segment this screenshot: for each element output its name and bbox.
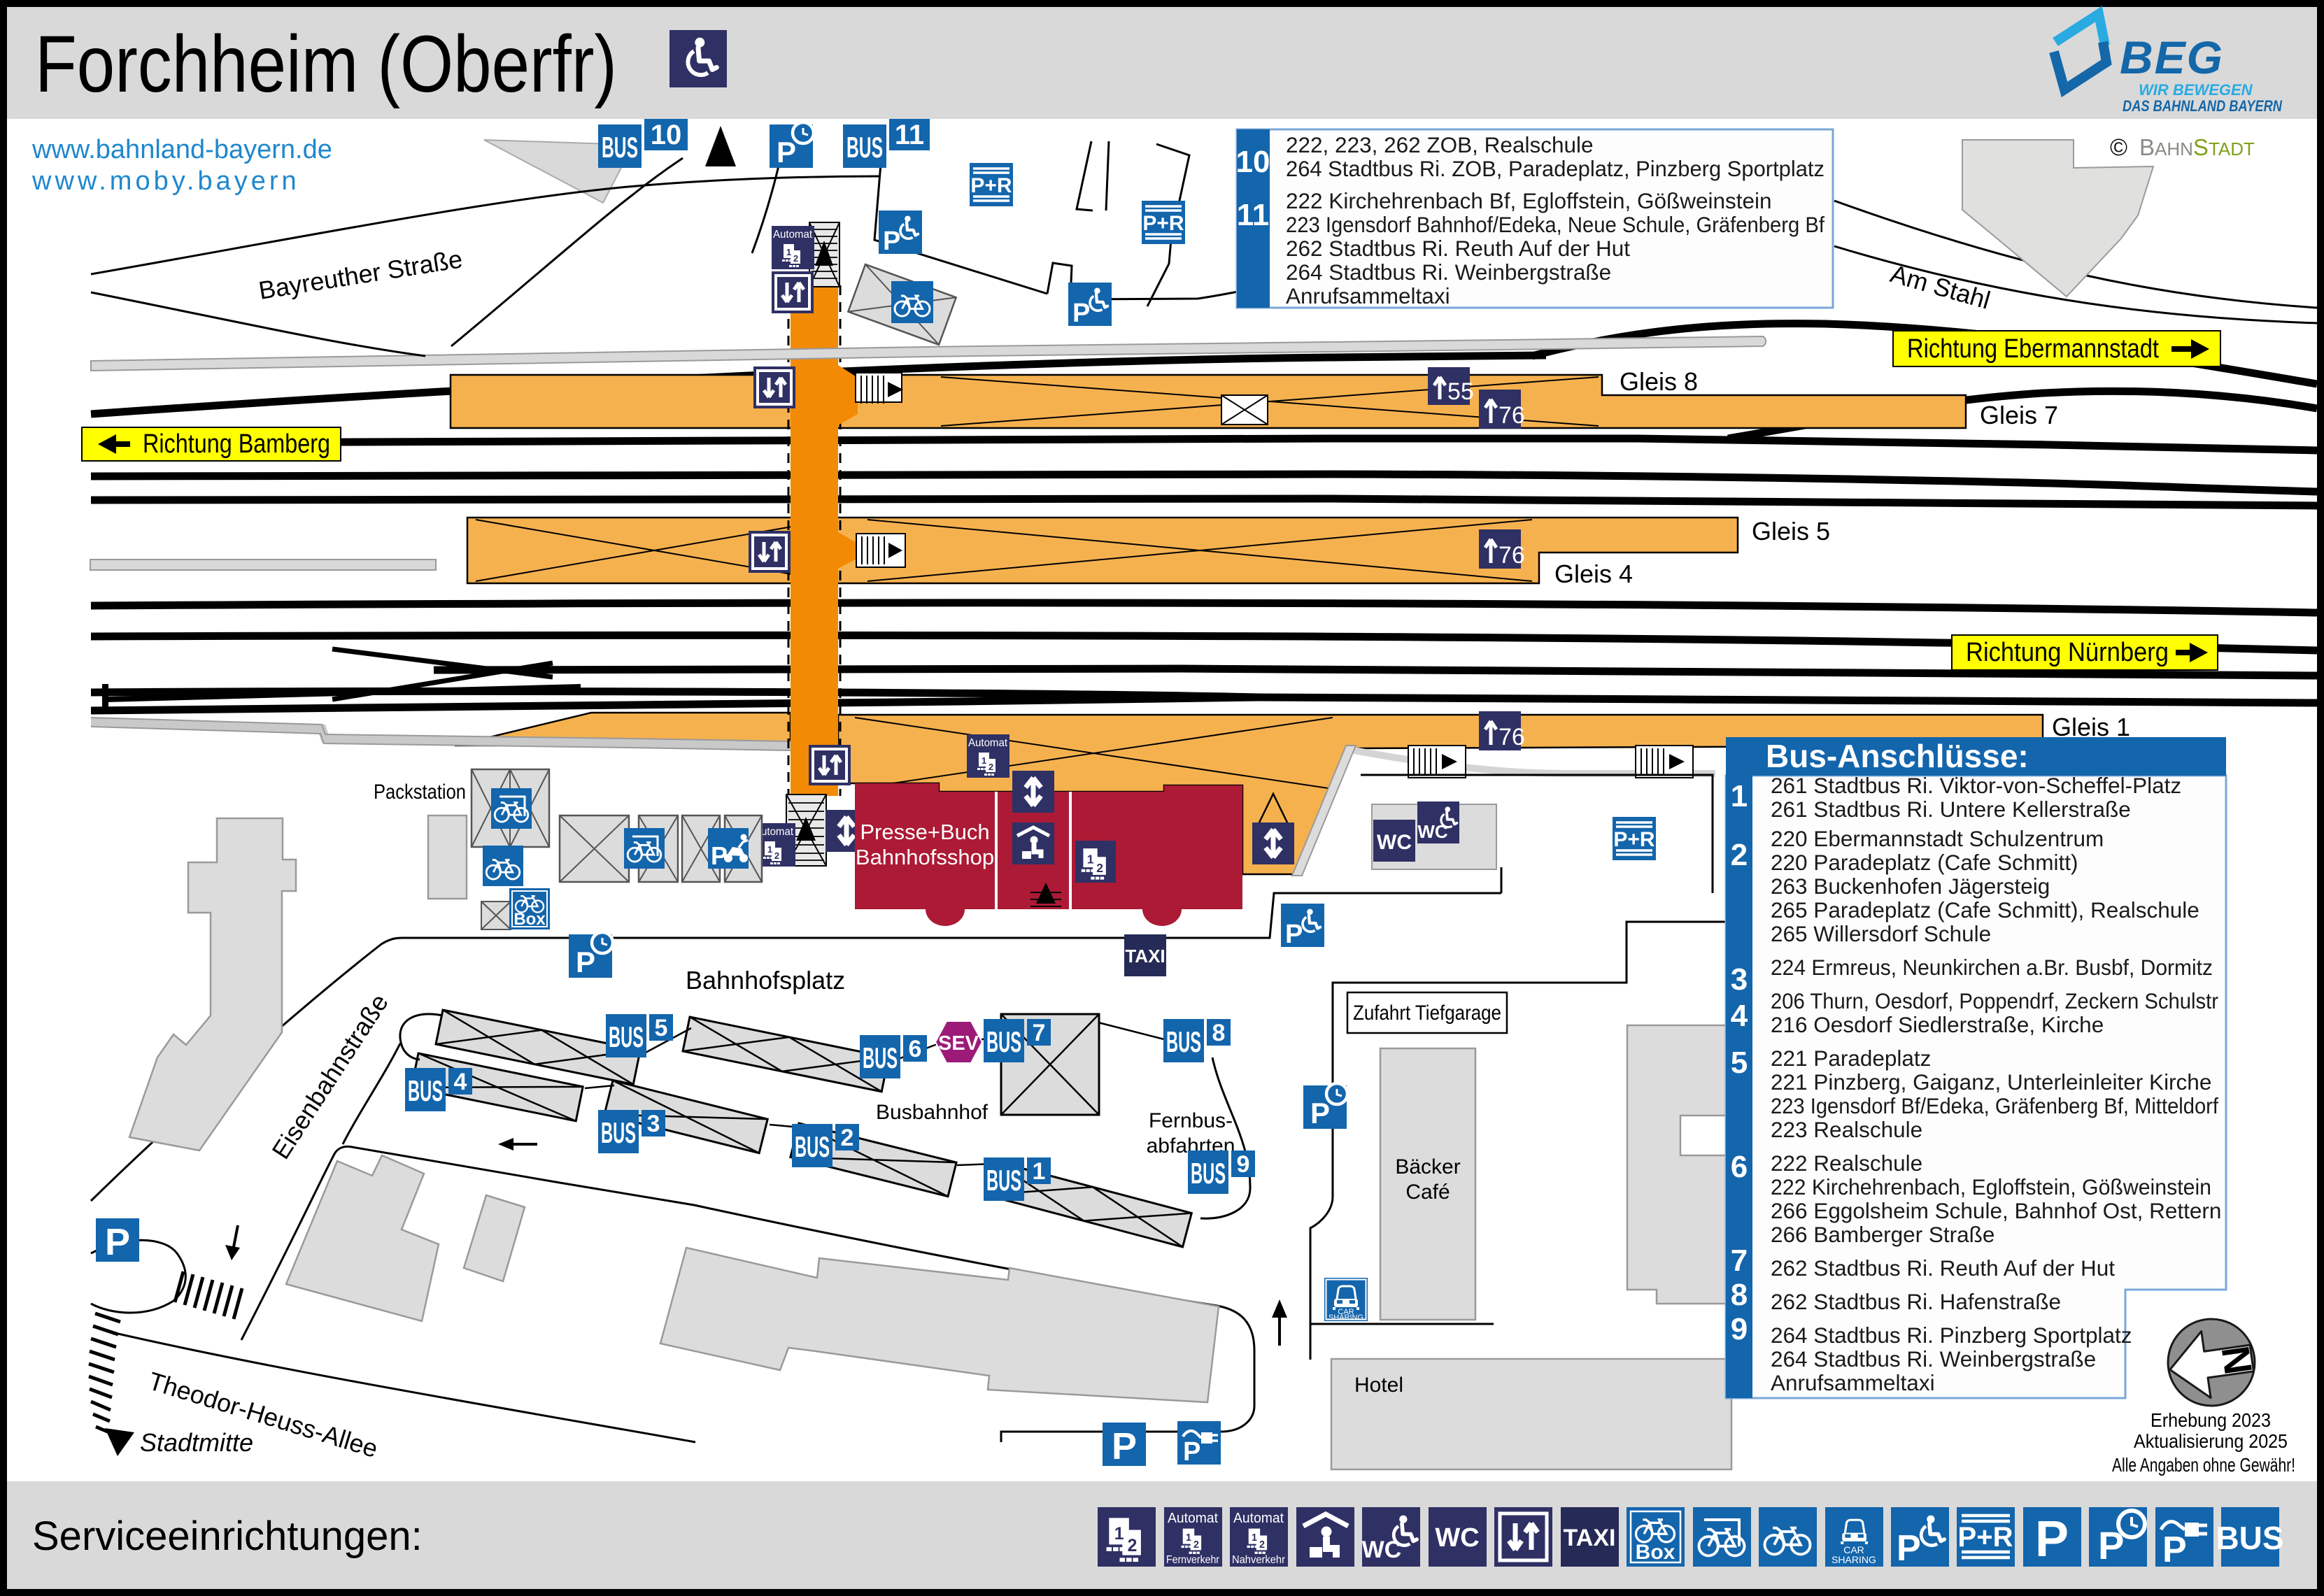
svg-text:222 Kirchehrenbach Bf, Egloffs: 222 Kirchehrenbach Bf, Egloffstein, Gößw… — [1286, 188, 1772, 213]
svg-text:Anrufsammeltaxi: Anrufsammeltaxi — [1286, 283, 1450, 308]
svg-text:262 Stadtbus Ri. Reuth Auf der: 262 Stadtbus Ri. Reuth Auf der Hut — [1286, 236, 1630, 261]
svg-text:Busbahnhof: Busbahnhof — [876, 1101, 989, 1124]
svg-text:P: P — [1112, 1425, 1137, 1467]
svg-text:P: P — [1310, 1097, 1330, 1130]
svg-text:WIR BEWEGEN: WIR BEWEGEN — [2139, 81, 2253, 99]
svg-text:WC: WC — [1435, 1523, 1479, 1553]
svg-text:BAHNSTADT: BAHNSTADT — [2139, 134, 2255, 160]
svg-text:6: 6 — [909, 1036, 922, 1062]
svg-text:Erhebung 2023: Erhebung 2023 — [2151, 1409, 2271, 1431]
svg-text:BUS: BUS — [863, 1041, 898, 1074]
svg-text:Gleis 8: Gleis 8 — [1620, 367, 1698, 396]
svg-text:Bahnhofsplatz: Bahnhofsplatz — [686, 966, 845, 995]
svg-text:Automat: Automat — [968, 737, 1008, 749]
svg-text:©: © — [2110, 134, 2127, 161]
svg-text:TAXI: TAXI — [1564, 1525, 1616, 1551]
svg-text:4: 4 — [1731, 999, 1748, 1033]
svg-text:264 Stadtbus Ri. Weinbergstraß: 264 Stadtbus Ri. Weinbergstraße — [1286, 259, 1611, 285]
svg-text:Aktualisierung 2025: Aktualisierung 2025 — [2134, 1430, 2288, 1452]
svg-text:2: 2 — [1731, 838, 1748, 872]
svg-text:Richtung Ebermannstadt: Richtung Ebermannstadt — [1907, 334, 2159, 364]
svg-text:BUS: BUS — [1166, 1025, 1201, 1058]
svg-text:10: 10 — [651, 120, 682, 150]
svg-text:262 Stadtbus Ri. Hafenstraße: 262 Stadtbus Ri. Hafenstraße — [1771, 1289, 2061, 1314]
svg-text:Hotel: Hotel — [1354, 1374, 1403, 1397]
svg-text:Box: Box — [1636, 1541, 1675, 1564]
svg-text:221 Paradeplatz: 221 Paradeplatz — [1771, 1046, 1931, 1071]
svg-text:3: 3 — [647, 1111, 660, 1137]
svg-text:Bahnhofsshop: Bahnhofsshop — [856, 845, 994, 869]
svg-text:222 Kirchehrenbach, Egloffstei: 222 Kirchehrenbach, Egloffstein, Gößwein… — [1771, 1174, 2211, 1199]
svg-text:223 Igensdorf Bahnhof/Edeka, N: 223 Igensdorf Bahnhof/Edeka, Neue Schule… — [1286, 212, 1825, 237]
svg-text:Forchheim (Oberfr): Forchheim (Oberfr) — [35, 20, 617, 109]
svg-text:1: 1 — [1033, 1158, 1046, 1185]
svg-text:7: 7 — [1033, 1020, 1046, 1046]
svg-text:Automat: Automat — [1233, 1511, 1284, 1526]
svg-text:55: 55 — [1447, 378, 1474, 405]
svg-text:264 Stadtbus Ri. Weinbergstraß: 264 Stadtbus Ri. Weinbergstraße — [1771, 1346, 2096, 1371]
svg-text:266 Eggolsheim Schule, Bahnhof: 266 Eggolsheim Schule, Bahnhof Ost, Rett… — [1771, 1198, 2221, 1223]
svg-text:263 Buckenhofen Jägersteig: 263 Buckenhofen Jägersteig — [1771, 874, 2050, 899]
svg-text:7: 7 — [1731, 1244, 1748, 1278]
svg-text:Bus-Anschlüsse:: Bus-Anschlüsse: — [1766, 738, 2029, 774]
svg-text:Presse+Buch: Presse+Buch — [860, 820, 989, 844]
svg-text:8: 8 — [1731, 1278, 1748, 1312]
svg-text:76: 76 — [1498, 724, 1525, 750]
svg-text:261 Stadtbus Ri. Viktor-von-Sc: 261 Stadtbus Ri. Viktor-von-Scheffel-Pla… — [1771, 773, 2181, 798]
svg-text:Fernverkehr: Fernverkehr — [1166, 1554, 1220, 1566]
svg-text:264 Stadtbus Ri. ZOB, Paradepl: 264 Stadtbus Ri. ZOB, Paradeplatz, Pinzb… — [1286, 156, 1825, 181]
svg-text:Gleis 5: Gleis 5 — [1752, 517, 1830, 546]
svg-text:P: P — [777, 136, 796, 169]
svg-text:Gleis 4: Gleis 4 — [1554, 560, 1633, 588]
svg-text:Alle Angaben ohne Gewähr!: Alle Angaben ohne Gewähr! — [2112, 1454, 2295, 1476]
svg-text:76: 76 — [1498, 542, 1525, 569]
svg-text:265 Paradeplatz (Cafe Schmitt): 265 Paradeplatz (Cafe Schmitt), Realschu… — [1771, 897, 2199, 922]
svg-text:P+R: P+R — [970, 174, 1012, 197]
svg-text:222 Realschule: 222 Realschule — [1771, 1150, 1922, 1176]
svg-text:SHARING: SHARING — [1831, 1554, 1876, 1565]
svg-text:Packstation: Packstation — [374, 781, 466, 804]
svg-text:220 Paradeplatz (Cafe Schmitt): 220 Paradeplatz (Cafe Schmitt) — [1771, 850, 2078, 875]
svg-text:216 Oesdorf Siedlerstraße, Kir: 216 Oesdorf Siedlerstraße, Kirche — [1771, 1012, 2104, 1037]
svg-text:206 Thurn, Oesdorf, Poppendrf,: 206 Thurn, Oesdorf, Poppendrf, Zeckern S… — [1771, 988, 2218, 1013]
svg-text:Automat: Automat — [773, 229, 813, 241]
svg-text:11: 11 — [895, 120, 924, 150]
svg-text:P+R: P+R — [1958, 1522, 2013, 1553]
svg-text:BUS: BUS — [609, 1020, 644, 1053]
svg-text:BUS: BUS — [601, 1116, 636, 1149]
svg-text:Bäcker: Bäcker — [1395, 1155, 1460, 1178]
svg-text:5: 5 — [1731, 1046, 1748, 1080]
svg-text:BUS: BUS — [1191, 1157, 1226, 1190]
svg-text:Zufahrt Tiefgarage: Zufahrt Tiefgarage — [1353, 1002, 1501, 1025]
svg-text:P: P — [105, 1221, 130, 1263]
svg-text:P: P — [2162, 1530, 2187, 1570]
svg-text:P: P — [1183, 1437, 1200, 1467]
svg-text:266 Bamberger Straße: 266 Bamberger Straße — [1771, 1222, 1994, 1247]
svg-text:223 Igensdorf Bf/Edeka, Gräfen: 223 Igensdorf Bf/Edeka, Gräfenberg Bf, M… — [1771, 1093, 2218, 1118]
svg-text:Box: Box — [513, 910, 546, 929]
svg-text:11: 11 — [1237, 198, 1270, 232]
svg-text:8: 8 — [1212, 1020, 1226, 1046]
svg-text:BUS: BUS — [795, 1130, 830, 1163]
svg-text:BUS: BUS — [2216, 1520, 2283, 1556]
svg-text:TAXI: TAXI — [1125, 946, 1165, 967]
svg-text:Nahverkehr: Nahverkehr — [1232, 1554, 1286, 1566]
svg-text:Richtung Nürnberg: Richtung Nürnberg — [1966, 638, 2169, 667]
svg-text:265 Willersdorf Schule: 265 Willersdorf Schule — [1771, 921, 1991, 946]
svg-text:6: 6 — [1731, 1150, 1748, 1184]
svg-text:220 Ebermannstadt Schulzentrum: 220 Ebermannstadt Schulzentrum — [1771, 826, 2104, 851]
svg-text:10: 10 — [1236, 145, 1270, 179]
svg-text:Serviceeinrichtungen:: Serviceeinrichtungen: — [32, 1513, 423, 1559]
svg-text:223 Realschule: 223 Realschule — [1771, 1117, 1922, 1142]
svg-text:Café: Café — [1405, 1181, 1450, 1204]
svg-text:SHARING: SHARING — [1328, 1313, 1363, 1322]
svg-text:BUS: BUS — [986, 1164, 1021, 1197]
svg-text:76: 76 — [1498, 402, 1525, 429]
svg-text:Anrufsammeltaxi: Anrufsammeltaxi — [1771, 1370, 1935, 1395]
svg-text:264 Stadtbus Ri. Pinzberg Spor: 264 Stadtbus Ri. Pinzberg Sportplatz — [1771, 1323, 2132, 1348]
svg-text:P+R: P+R — [1142, 212, 1184, 235]
svg-text:WC: WC — [1377, 831, 1412, 854]
svg-text:9: 9 — [1237, 1151, 1250, 1178]
svg-text:Gleis 7: Gleis 7 — [1980, 401, 2058, 429]
svg-text:P: P — [1285, 920, 1303, 949]
svg-text:261 Stadtbus Ri. Untere Keller: 261 Stadtbus Ri. Untere Kellerstraße — [1771, 797, 2131, 822]
svg-text:Stadtmitte: Stadtmitte — [140, 1428, 253, 1457]
svg-text:2: 2 — [841, 1125, 854, 1151]
svg-text:1: 1 — [1731, 779, 1748, 813]
svg-text:P: P — [1072, 299, 1090, 328]
svg-text:Automat: Automat — [1168, 1511, 1218, 1526]
svg-text:BUS: BUS — [602, 131, 638, 164]
svg-text:Fernbus-: Fernbus- — [1149, 1109, 1233, 1132]
svg-text:www.bahnland-bayern.de: www.bahnland-bayern.de — [31, 135, 332, 164]
svg-text:P: P — [576, 946, 595, 978]
svg-text:P: P — [883, 227, 900, 256]
svg-text:224 Ermreus, Neunkirchen a.Br.: 224 Ermreus, Neunkirchen a.Br. Busbf, Do… — [1771, 955, 2213, 980]
svg-text:DAS BAHNLAND BAYERN: DAS BAHNLAND BAYERN — [2123, 97, 2283, 115]
svg-text:BUS: BUS — [408, 1074, 443, 1107]
svg-text:BEG: BEG — [2120, 31, 2224, 83]
svg-text:5: 5 — [655, 1015, 668, 1041]
svg-text:262 Stadtbus Ri. Reuth Auf der: 262 Stadtbus Ri. Reuth Auf der Hut — [1771, 1255, 2115, 1281]
svg-text:9: 9 — [1731, 1312, 1748, 1346]
svg-text:SEV: SEV — [938, 1032, 979, 1055]
svg-text:Richtung Bamberg: Richtung Bamberg — [143, 429, 330, 459]
svg-text:4: 4 — [454, 1069, 467, 1095]
svg-text:3: 3 — [1731, 962, 1748, 997]
svg-text:P+R: P+R — [1613, 828, 1655, 851]
svg-text:BUS: BUS — [846, 131, 883, 164]
svg-text:Gleis 1: Gleis 1 — [2052, 713, 2130, 741]
svg-text:BUS: BUS — [986, 1025, 1021, 1058]
svg-text:www.moby.bayern: www.moby.bayern — [31, 166, 300, 196]
svg-text:P: P — [2035, 1511, 2069, 1567]
svg-text:221 Pinzberg, Gaiganz, Unterle: 221 Pinzberg, Gaiganz, Unterleinleiter K… — [1771, 1069, 2211, 1095]
svg-text:222, 223, 262 ZOB, Realschule: 222, 223, 262 ZOB, Realschule — [1286, 132, 1594, 157]
svg-text:P: P — [1897, 1528, 1921, 1569]
